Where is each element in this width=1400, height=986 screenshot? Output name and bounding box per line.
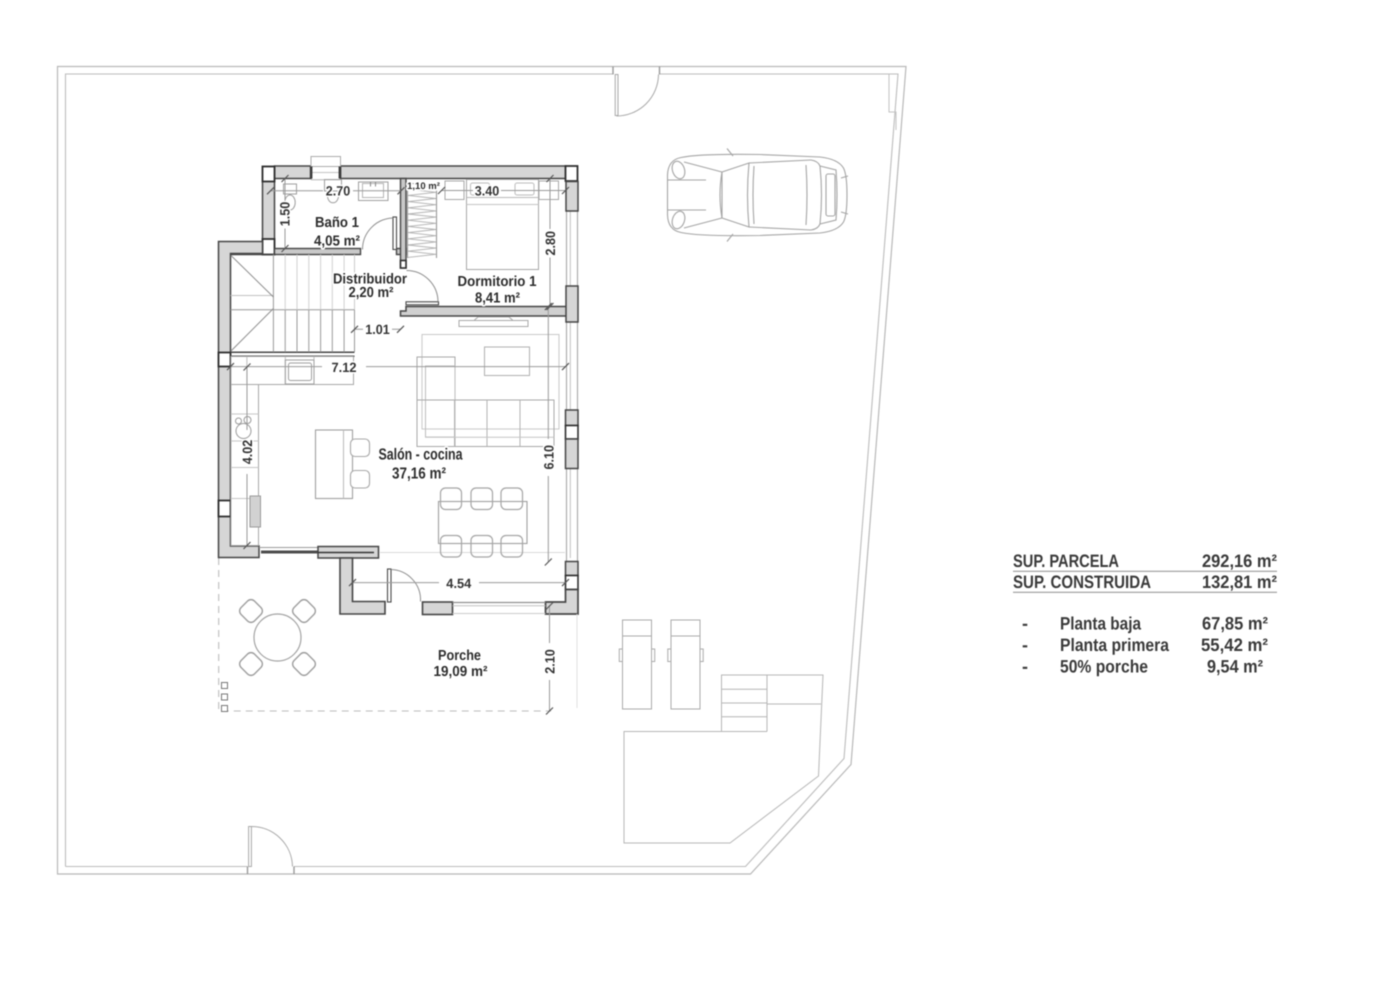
svg-text:132,81 m²: 132,81 m²	[1202, 572, 1277, 592]
svg-text:50% porche: 50% porche	[1060, 656, 1148, 676]
svg-text:67,85 m²: 67,85 m²	[1202, 614, 1268, 634]
svg-text:4.02: 4.02	[240, 440, 255, 465]
svg-text:Baño 1: Baño 1	[315, 215, 359, 231]
svg-text:-: -	[1022, 614, 1028, 634]
svg-text:-: -	[1022, 656, 1028, 676]
svg-text:2.80: 2.80	[543, 231, 558, 256]
svg-text:9,54 m²: 9,54 m²	[1207, 656, 1263, 676]
svg-text:8,41 m²: 8,41 m²	[475, 291, 520, 307]
svg-text:7.12: 7.12	[332, 360, 357, 375]
svg-text:292,16 m²: 292,16 m²	[1202, 551, 1277, 571]
svg-text:55,42 m²: 55,42 m²	[1201, 635, 1268, 655]
svg-text:3.40: 3.40	[475, 183, 500, 198]
svg-text:Porche: Porche	[438, 648, 481, 664]
svg-text:1.50: 1.50	[277, 202, 292, 227]
svg-text:Dormitorio 1: Dormitorio 1	[458, 274, 537, 290]
svg-text:SUP. PARCELA: SUP. PARCELA	[1013, 551, 1119, 571]
svg-text:19,09 m²: 19,09 m²	[434, 664, 488, 680]
svg-text:Planta primera: Planta primera	[1060, 635, 1170, 655]
svg-text:6.10: 6.10	[542, 445, 557, 470]
svg-text:-: -	[1022, 635, 1028, 655]
svg-text:1,10 m²: 1,10 m²	[407, 181, 440, 192]
svg-text:2.70: 2.70	[326, 184, 351, 199]
svg-text:4,05 m²: 4,05 m²	[314, 233, 360, 249]
svg-text:37,16 m²: 37,16 m²	[392, 466, 446, 483]
svg-text:1.01: 1.01	[365, 322, 390, 337]
svg-text:2.10: 2.10	[542, 649, 557, 674]
svg-text:4.54: 4.54	[446, 576, 471, 591]
svg-text:SUP. CONSTRUIDA: SUP. CONSTRUIDA	[1013, 572, 1151, 592]
svg-text:2,20 m²: 2,20 m²	[349, 285, 394, 301]
svg-text:Planta baja: Planta baja	[1060, 614, 1142, 634]
svg-text:Salón - cocina: Salón - cocina	[379, 447, 463, 464]
